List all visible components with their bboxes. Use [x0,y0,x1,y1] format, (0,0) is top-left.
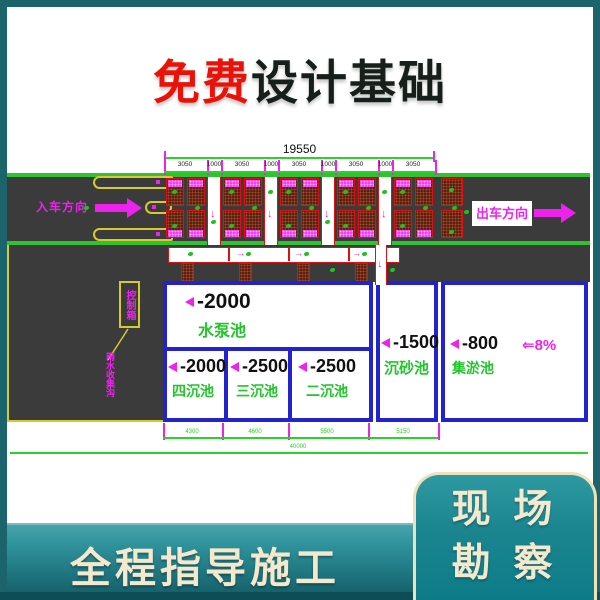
bay-pad [417,230,431,237]
dim-segment-label: 1000 [372,161,398,168]
tank-depth-label: -2500 [230,356,288,377]
bay-pad [246,230,260,237]
island-marker [156,180,160,184]
tank-depth-value: -1500 [393,332,439,353]
survey-card-line1: 现 场 [452,483,559,537]
tank-depth-label: -1500 [381,332,439,353]
dim-tick [435,160,437,175]
dim-segment-label: 1000 [258,161,284,168]
bay-pad [396,180,410,187]
exit-arrow-head-icon [561,203,576,223]
footer-slogan: 全程指导施工 [0,534,410,594]
tank-depth-label: -800 [450,333,498,354]
lane-arrow-icon: ↓ [210,208,216,220]
depth-marker-icon [298,362,307,372]
control-box: 控制箱 [119,281,140,328]
exit-direction-label: 出车方向 [472,201,532,226]
dim-tick [438,423,440,440]
entry-arrow-shaft [95,204,127,212]
exit-arrow-shaft [534,209,561,217]
bay-pad [360,180,374,187]
pipe-stub [297,263,310,282]
bay-pad [189,230,203,237]
lane-arrow-icon: ↓ [324,208,330,220]
dim-segment-label: 5500 [312,429,342,435]
dim-segment-label: 1000 [315,161,341,168]
walkway-arrow-icon: → [352,248,361,258]
tank-depth-value: -2000 [180,356,226,377]
poster: 免费设计基础 195503050100030501000305010003050… [0,0,600,600]
wash-bay [441,178,463,206]
entry-island [93,176,173,189]
dim-segment-label: 3050 [343,161,369,168]
dim-segment-label: 3050 [400,161,426,168]
lane-arrow-icon: ↓ [381,208,387,220]
tank-name-label: 四沉池 [172,381,214,401]
pipe-stub [239,263,252,282]
depth-marker-icon [450,339,459,349]
tank-depth-value: -2500 [242,356,288,377]
dim-total-top-label: 19550 [164,142,435,156]
road-edge-top [7,173,590,177]
walkway-arrow-icon: → [236,248,245,258]
dim-segment-label: 3050 [172,161,198,168]
tank-depth-label: -2500 [298,356,356,377]
bay-pad [282,180,296,187]
tank-name-label: 水泵池 [198,317,246,341]
dim-segment-label: 4600 [240,429,270,435]
bay-pad [225,180,239,187]
bay-pad [168,180,182,187]
pipe-stub [355,263,368,282]
walkway-arrow-icon: → [294,248,303,258]
tank-depth-value: -2000 [197,290,251,314]
bay-pad [360,230,374,237]
depth-marker-icon [230,362,239,372]
connector-arrow-icon: ↓ [377,258,383,270]
dim-segment-label: 3050 [229,161,255,168]
dim-segments-bottom-line [163,437,438,439]
drain-note: 雨水收集沟 [104,352,117,404]
dim-segment-label: 4300 [177,429,207,435]
entry-arrow-head-icon [127,198,142,218]
bay-pad [168,230,182,237]
bay-pad [303,180,317,187]
tank-depth-value: -2500 [310,356,356,377]
entry-island [93,228,173,241]
dim-total-bottom-label: 40000 [268,444,328,450]
tank-name-label: 集淤池 [452,358,494,378]
tank-depth-value: -800 [462,333,498,354]
depth-marker-icon [185,297,194,307]
tank-name-label: 沉砂池 [384,357,429,378]
depth-marker-icon [168,362,177,372]
walkway-divider [228,248,230,261]
dim-total-top-line [164,157,435,159]
dim-tick [164,160,166,175]
walkway-divider [288,248,290,261]
tank-depth-label: -2000 [168,356,226,377]
bay-pad [189,180,203,187]
bay-pad [396,230,410,237]
dim-segments-top-line [164,171,435,173]
tank-depth-label: -2000 [185,290,251,314]
bay-pad [225,230,239,237]
lane-arrow-icon: ↓ [267,208,273,220]
island-marker [152,205,156,209]
island-marker [156,232,160,236]
entry-direction-label: 入车方向 [36,198,88,215]
dim-total-bottom-line [10,452,588,454]
dim-segment-label: 3050 [286,161,312,168]
depth-marker-icon [381,338,390,348]
walkway-divider [348,248,350,261]
dim-segment-label: 5150 [388,429,418,435]
bay-pad [282,230,296,237]
bay-pad [339,180,353,187]
pipe-stub [181,263,194,282]
dim-segment-label: 1000 [201,161,227,168]
tank-name-label: 二沉池 [306,381,348,401]
bay-pad [246,180,260,187]
survey-card-line2: 勘 察 [452,537,559,591]
bay-pad [339,230,353,237]
survey-card: 现 场 勘 察 [413,472,597,600]
slope-label: ⇐8% [522,336,556,354]
tank-name-label: 三沉池 [236,381,278,401]
bay-pad [303,230,317,237]
bay-pad [417,180,431,187]
